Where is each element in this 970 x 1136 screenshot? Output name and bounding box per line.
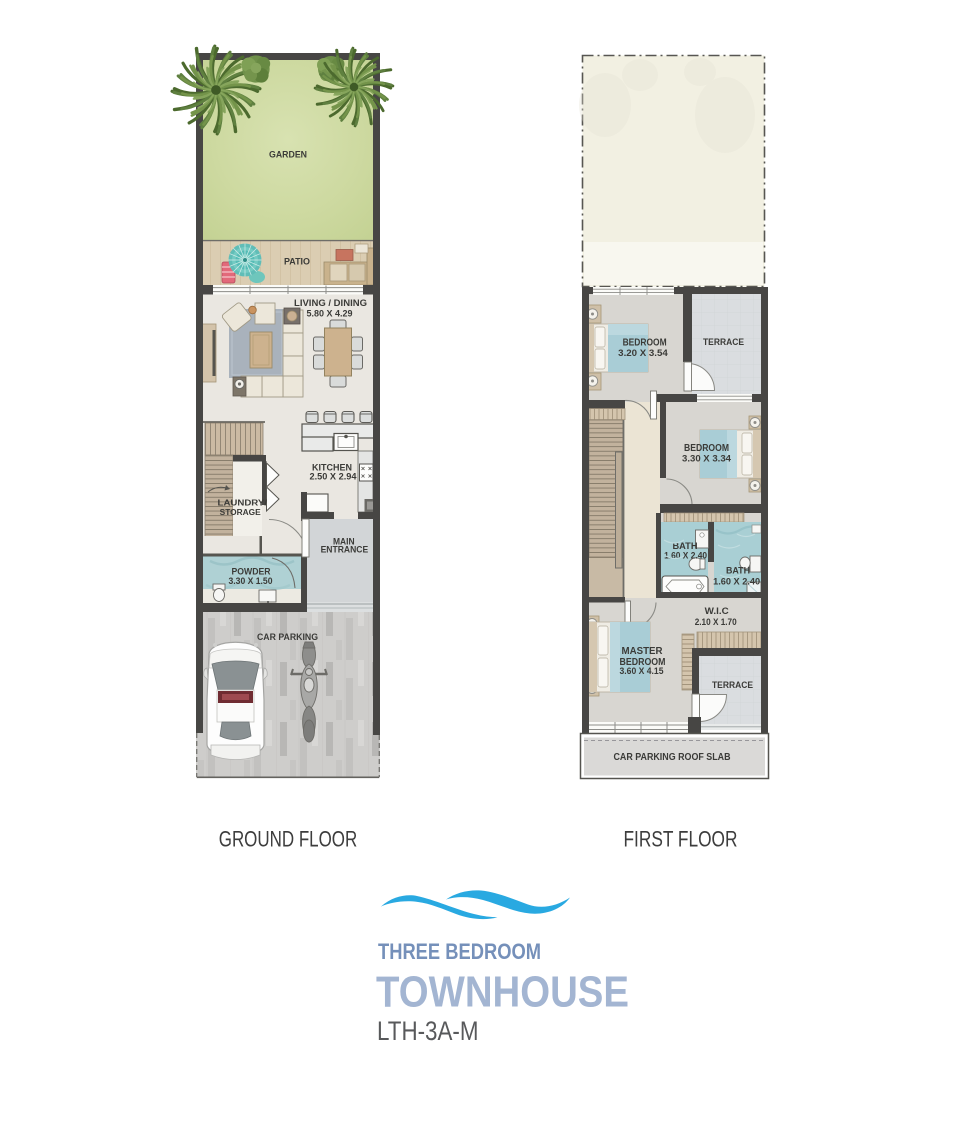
svg-text:BATH: BATH bbox=[726, 566, 750, 576]
svg-text:GROUND FLOOR: GROUND FLOOR bbox=[219, 827, 358, 852]
svg-text:1.60 X 2.40: 1.60 X 2.40 bbox=[713, 577, 760, 587]
svg-text:5.80 X 4.29: 5.80 X 4.29 bbox=[307, 309, 353, 320]
svg-text:STORAGE: STORAGE bbox=[220, 508, 262, 517]
svg-text:3.30 X 1.50: 3.30 X 1.50 bbox=[229, 576, 273, 587]
svg-text:TOWNHOUSE: TOWNHOUSE bbox=[376, 968, 629, 1017]
svg-text:1.60 X 2.40: 1.60 X 2.40 bbox=[664, 550, 707, 560]
svg-text:THREE BEDROOM: THREE BEDROOM bbox=[378, 939, 541, 964]
svg-text:3.30 X 3.34: 3.30 X 3.34 bbox=[682, 453, 732, 464]
svg-text:2.50 X 2.94: 2.50 X 2.94 bbox=[310, 472, 358, 482]
svg-text:W.I.C: W.I.C bbox=[705, 606, 729, 617]
svg-text:LAUNDRY/: LAUNDRY/ bbox=[218, 499, 268, 508]
svg-text:TERRACE: TERRACE bbox=[703, 337, 745, 348]
svg-text:3.20 X 3.54: 3.20 X 3.54 bbox=[618, 348, 668, 359]
svg-text:3.60 X 4.15: 3.60 X 4.15 bbox=[620, 666, 665, 677]
svg-text:FIRST FLOOR: FIRST FLOOR bbox=[624, 827, 738, 852]
svg-text:MASTER: MASTER bbox=[622, 646, 664, 657]
svg-text:LIVING / DINING: LIVING / DINING bbox=[294, 298, 367, 309]
svg-text:ENTRANCE: ENTRANCE bbox=[321, 544, 369, 555]
svg-text:PATIO: PATIO bbox=[284, 257, 311, 268]
svg-text:2.10 X 1.70: 2.10 X 1.70 bbox=[695, 617, 737, 628]
svg-text:CAR PARKING: CAR PARKING bbox=[257, 632, 318, 643]
svg-text:CAR PARKING ROOF SLAB: CAR PARKING ROOF SLAB bbox=[614, 751, 731, 763]
svg-text:TERRACE: TERRACE bbox=[712, 680, 754, 691]
svg-text:LTH-3A-M: LTH-3A-M bbox=[377, 1016, 479, 1046]
svg-text:GARDEN: GARDEN bbox=[269, 150, 307, 161]
